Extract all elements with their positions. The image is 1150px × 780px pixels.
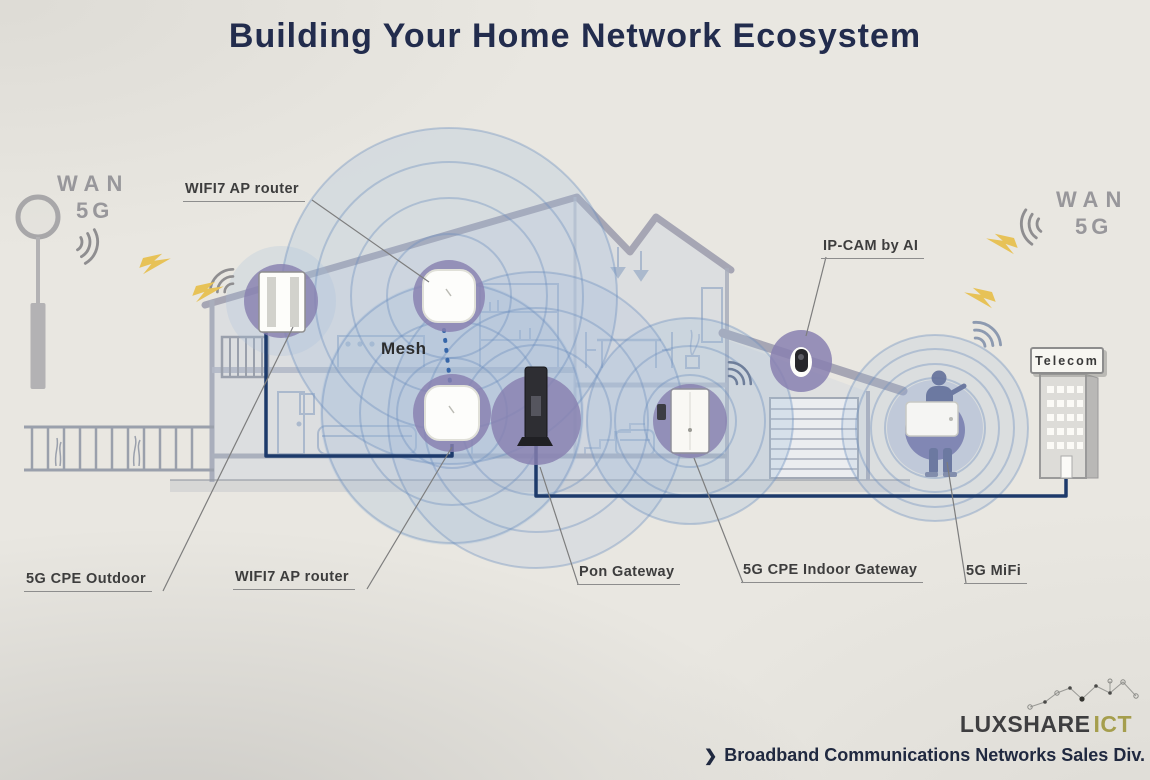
label-wifi7-ap-router-bottom: WIFI7 AP router xyxy=(233,569,355,590)
terrace-railing xyxy=(24,427,214,470)
chevron-icon: ❯ xyxy=(704,748,717,765)
cpe-indoor-gateway-icon xyxy=(653,384,727,458)
logo-primary-text: LUXSHARE xyxy=(960,711,1091,737)
telecom-sign-text: Telecom xyxy=(1035,354,1099,368)
lightning-bolt-icon xyxy=(138,251,171,278)
cpe-outdoor-icon xyxy=(244,264,318,338)
wan-text-right: WAN xyxy=(1056,187,1128,212)
ip-cam-icon xyxy=(770,330,832,392)
wan-5g-label-right: WAN 5G xyxy=(1056,186,1128,240)
logo-secondary-text: ICT xyxy=(1093,711,1132,737)
wifi-signal-icon xyxy=(75,227,102,265)
lightning-bolt-icon xyxy=(964,285,997,312)
wan-5g-label-left: WAN 5G xyxy=(57,170,129,224)
label-mesh: Mesh xyxy=(381,339,426,359)
label-5g-cpe-indoor-gateway: 5G CPE Indoor Gateway xyxy=(741,562,923,583)
wifi-signal-icon xyxy=(1019,208,1043,245)
constellation-icon xyxy=(1028,679,1138,709)
5g-text-left: 5G xyxy=(76,197,129,224)
division-footer: ❯Broadband Communications Networks Sales… xyxy=(704,745,1145,766)
wifi-coverage-areas xyxy=(226,128,1028,568)
telecom-sign: Telecom xyxy=(1030,347,1104,374)
5g-pole-icon xyxy=(18,197,58,389)
slide-home-network-ecosystem: Building Your Home Network Ecosystem WAN… xyxy=(0,0,1150,780)
label-5g-mifi: 5G MiFi xyxy=(964,563,1027,584)
label-ip-cam: IP-CAM by AI xyxy=(821,238,924,259)
division-text: Broadband Communications Networks Sales … xyxy=(724,745,1145,765)
5g-text-right: 5G xyxy=(1075,213,1128,240)
wifi7-ap-top-icon xyxy=(413,260,485,332)
diagram-canvas xyxy=(0,0,1150,780)
wan-text-left: WAN xyxy=(57,171,129,196)
wifi7-ap-bottom-icon xyxy=(413,374,491,452)
label-5g-cpe-outdoor: 5G CPE Outdoor xyxy=(24,571,152,592)
page-title: Building Your Home Network Ecosystem xyxy=(0,17,1150,56)
luxshare-ict-logo: LUXSHAREICT xyxy=(960,711,1132,738)
label-wifi7-ap-router-top: WIFI7 AP router xyxy=(183,181,305,202)
label-pon-gateway: Pon Gateway xyxy=(577,564,680,585)
lightning-bolt-icon xyxy=(986,231,1019,258)
telecom-building-icon xyxy=(1040,371,1098,478)
